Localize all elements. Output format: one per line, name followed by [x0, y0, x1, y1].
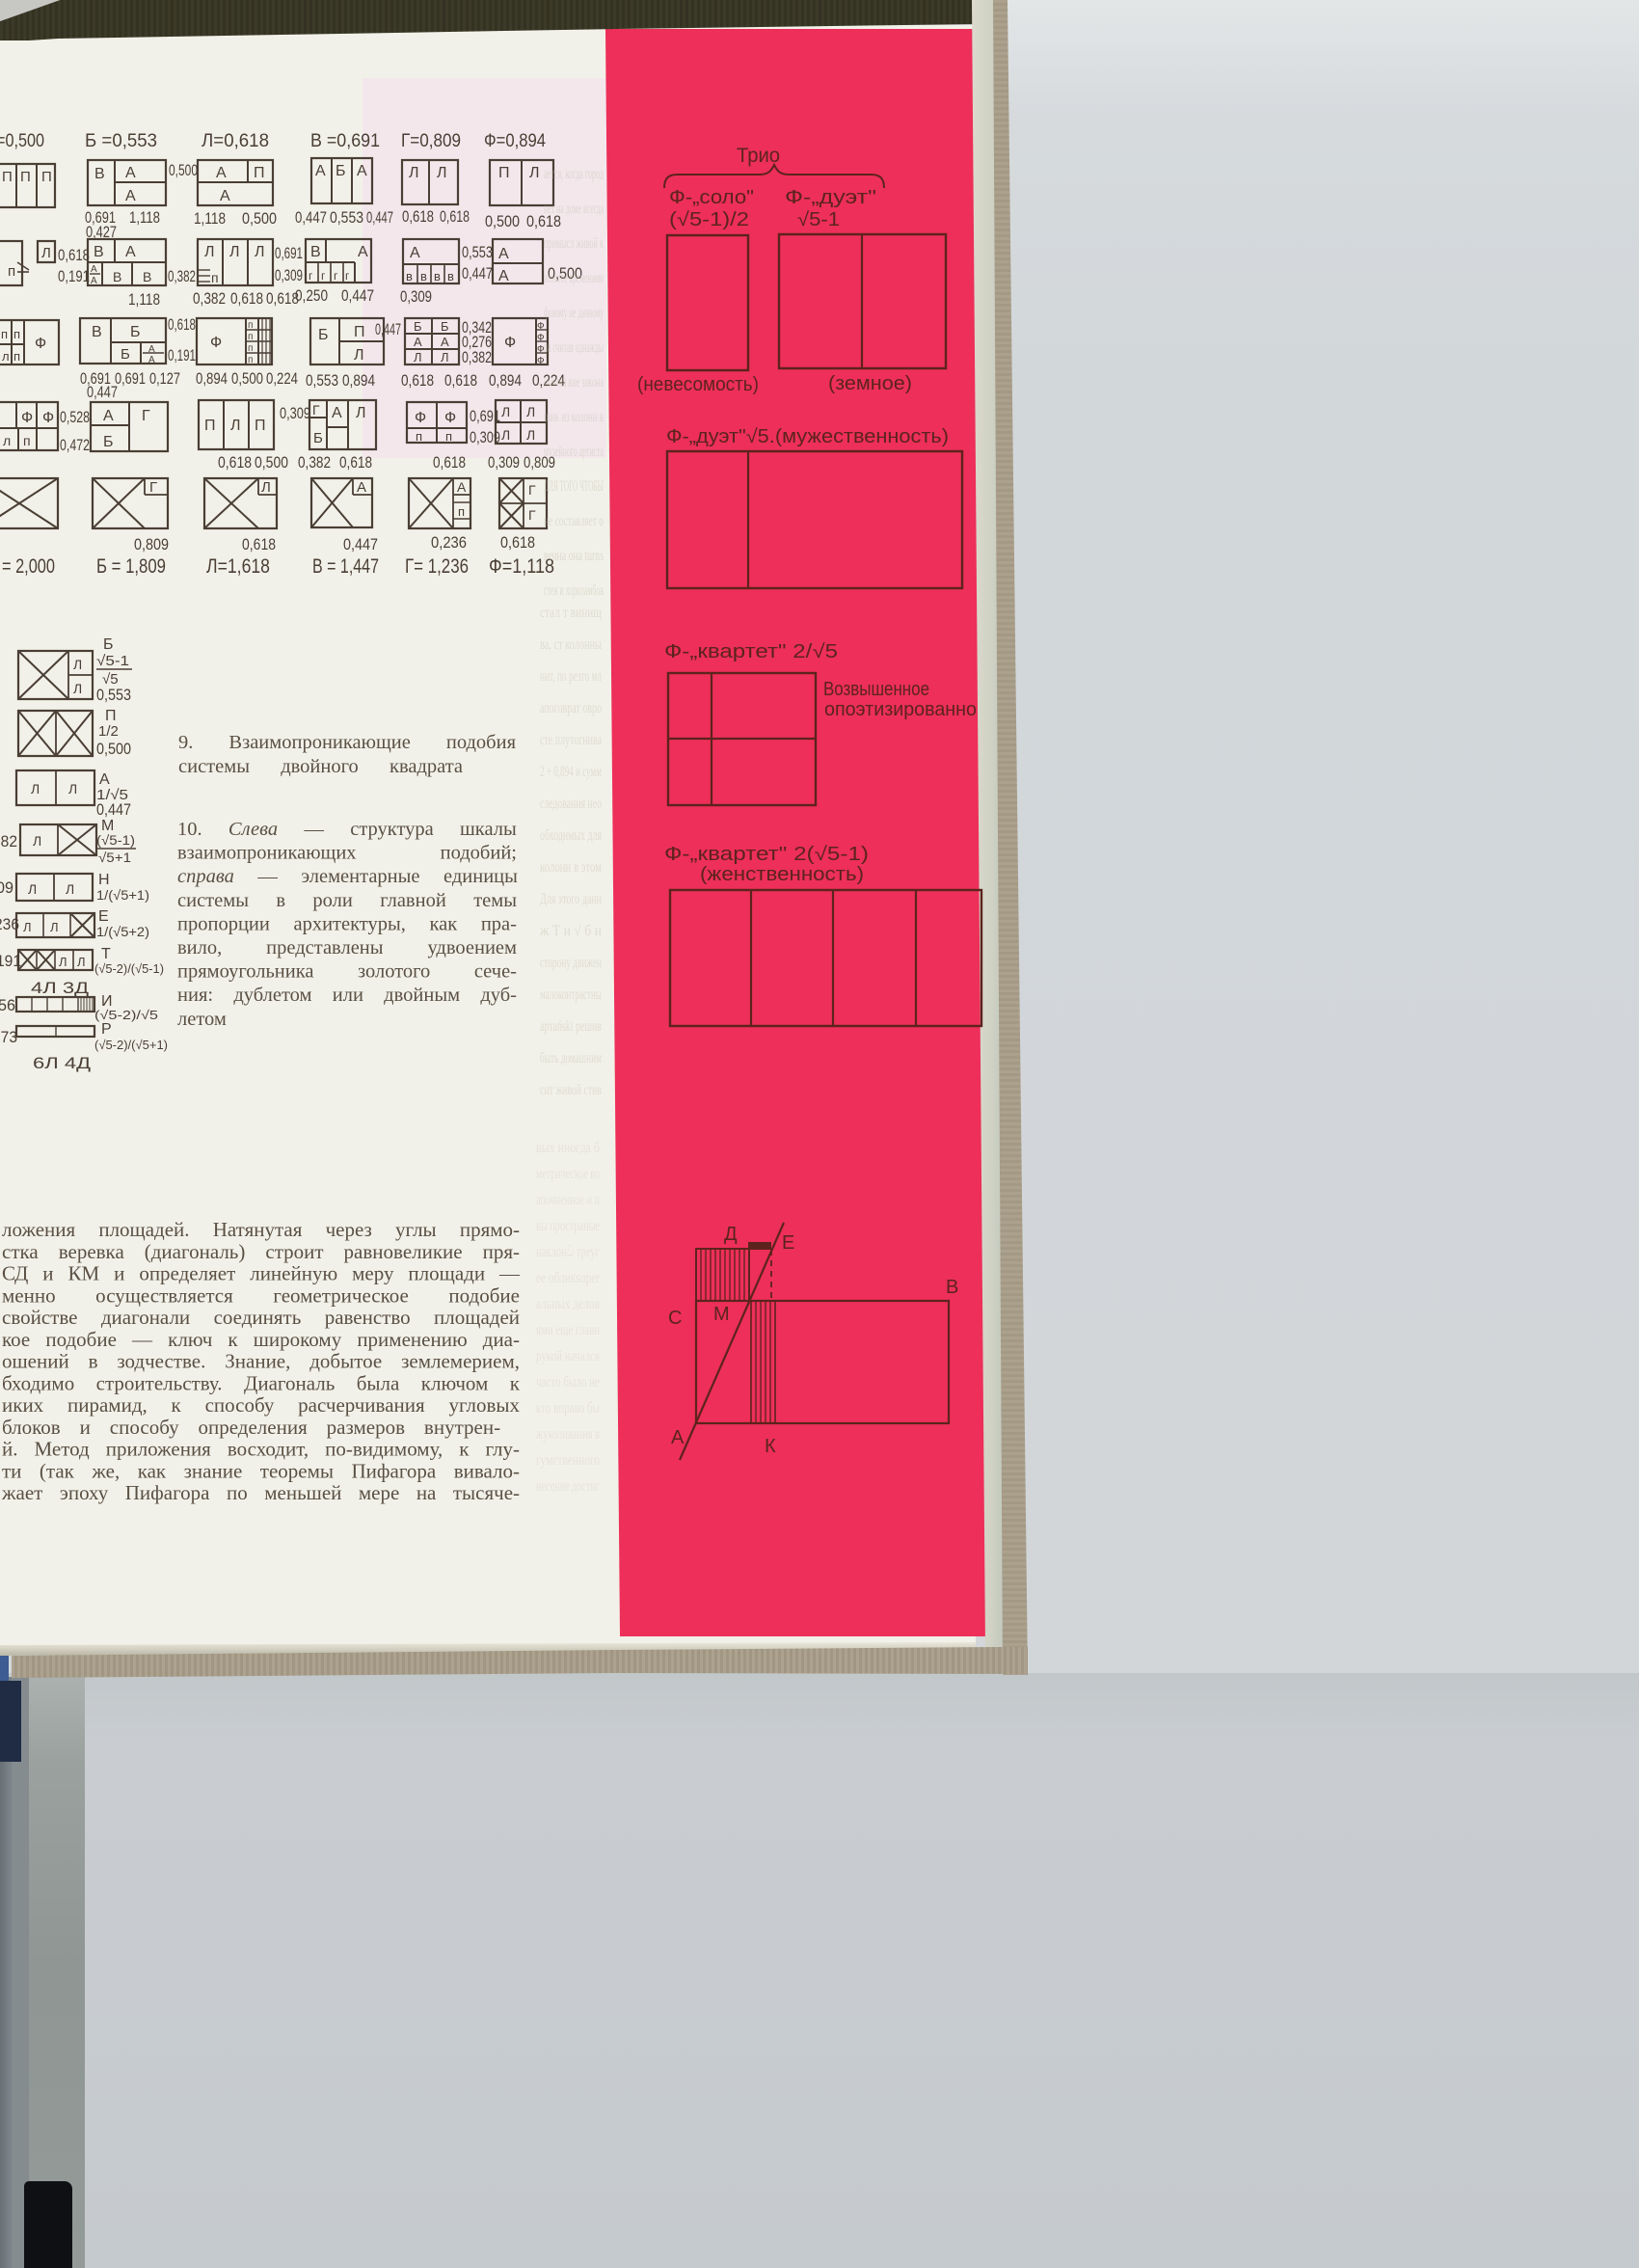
svg-text:Ф-„дуэт": Ф-„дуэт"	[785, 187, 876, 208]
svg-text:Е: Е	[782, 1232, 794, 1254]
svg-text:(земное): (земное)	[828, 373, 912, 394]
svg-text:(√5-1)/2: (√5-1)/2	[669, 209, 749, 230]
svg-text:К: К	[765, 1436, 776, 1457]
svg-text:(женственность): (женственность)	[700, 864, 864, 885]
svg-text:Д: Д	[724, 1224, 738, 1245]
svg-text:Ф-„соло": Ф-„соло"	[669, 187, 754, 208]
svg-text:(невесомость): (невесомость)	[637, 374, 759, 395]
svg-text:А: А	[671, 1427, 685, 1448]
svg-text:С: С	[668, 1308, 682, 1329]
svg-text:опоэтизированно: опоэтизированно	[824, 699, 977, 720]
svg-text:Ф-„квартет" 2(√5-1): Ф-„квартет" 2(√5-1)	[664, 844, 869, 865]
svg-text:Ф-„квартет" 2/√5: Ф-„квартет" 2/√5	[664, 641, 838, 662]
svg-text:М: М	[713, 1304, 730, 1325]
svg-text:В: В	[946, 1277, 958, 1298]
svg-text:Ф-„дуэт"√5.(мужественность): Ф-„дуэт"√5.(мужественность)	[666, 426, 949, 447]
svg-text:Трио: Трио	[737, 145, 780, 167]
svg-text:Возвышенное: Возвышенное	[823, 679, 929, 700]
svg-text:√5-1: √5-1	[797, 209, 840, 230]
